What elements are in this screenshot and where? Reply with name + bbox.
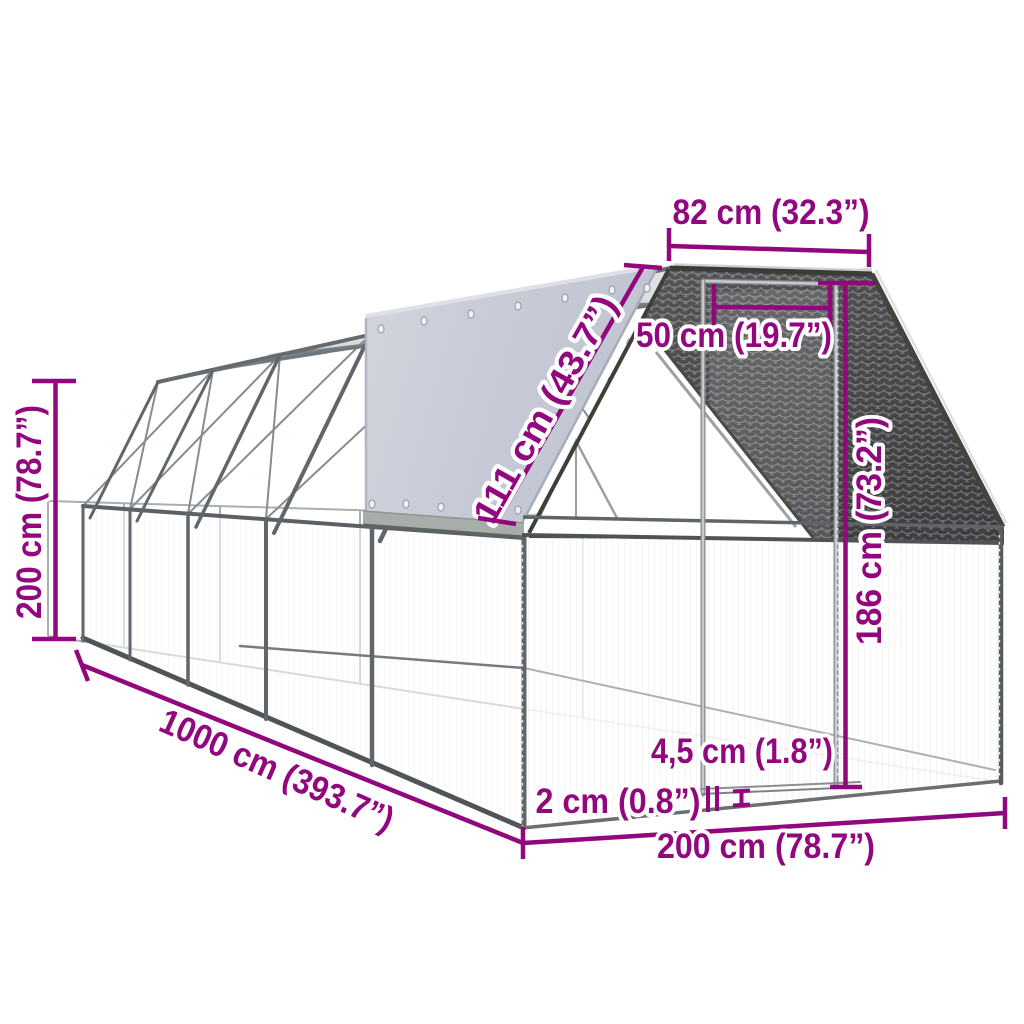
- svg-text:200 cm (78.7”): 200 cm (78.7”): [657, 827, 875, 866]
- svg-text:50 cm (19.7”): 50 cm (19.7”): [636, 316, 832, 355]
- svg-text:200 cm (78.7”): 200 cm (78.7”): [10, 405, 49, 619]
- svg-text:2 cm (0.8”): 2 cm (0.8”): [536, 782, 701, 821]
- svg-text:82 cm (32.3”): 82 cm (32.3”): [673, 193, 870, 232]
- svg-text:4,5 cm (1.8”): 4,5 cm (1.8”): [651, 732, 833, 771]
- svg-text:186 cm (73.2”): 186 cm (73.2”): [850, 417, 889, 645]
